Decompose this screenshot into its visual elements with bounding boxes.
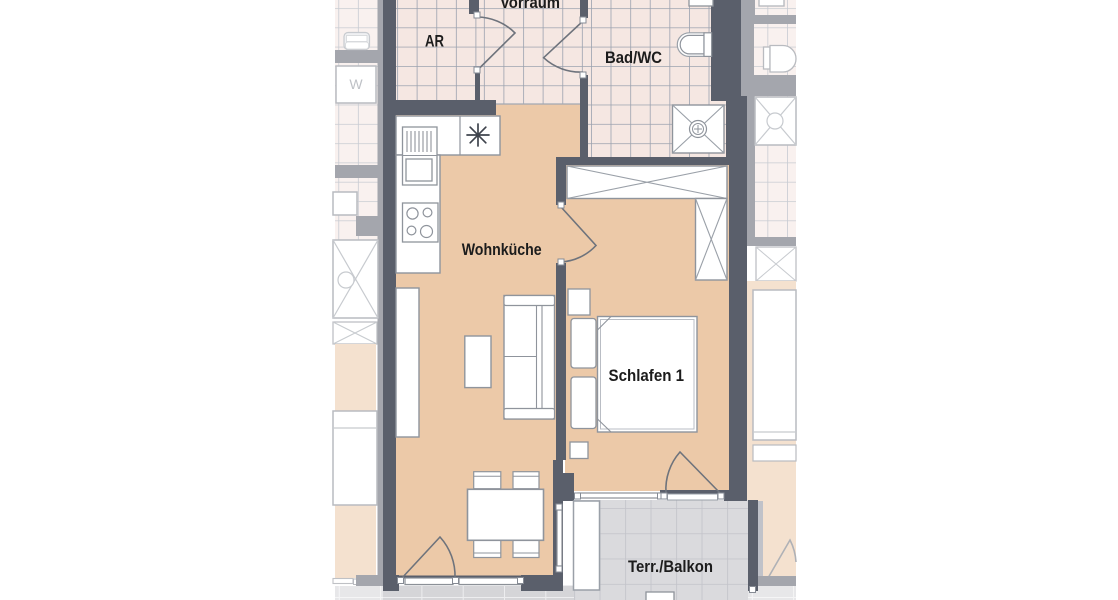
svg-text:AR: AR (425, 32, 444, 51)
svg-text:W: W (349, 76, 363, 92)
svg-text:Wohnküche: Wohnküche (462, 240, 542, 259)
svg-text:Terr./Balkon: Terr./Balkon (628, 557, 713, 576)
svg-text:Vorraum: Vorraum (500, 0, 560, 12)
svg-text:Schlafen 1: Schlafen 1 (609, 366, 685, 385)
svg-text:Bad/WC: Bad/WC (605, 48, 662, 67)
